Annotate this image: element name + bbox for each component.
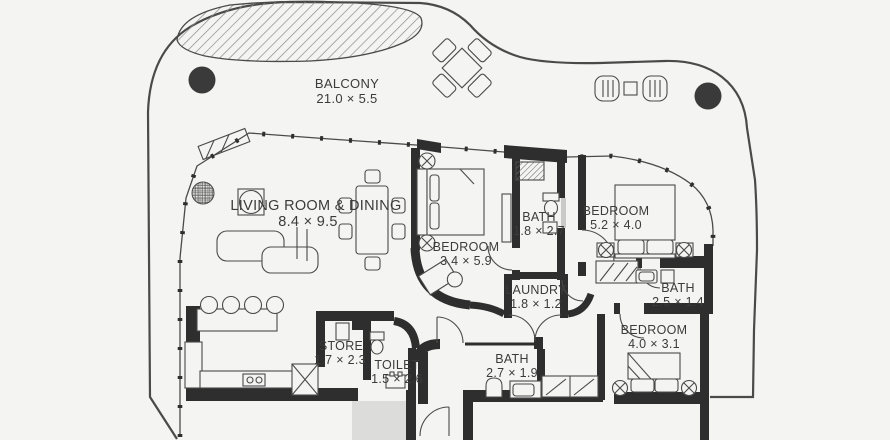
shaft-icon [292, 364, 318, 395]
bar-stool-icon [201, 297, 218, 314]
lamp-icon [599, 243, 614, 258]
dining-table [339, 170, 405, 270]
svg-text:1.5 × 2.6: 1.5 × 2.6 [371, 372, 423, 386]
svg-text:5.2 × 4.0: 5.2 × 4.0 [590, 218, 642, 232]
bedroom-2-furniture [596, 185, 693, 283]
svg-text:BEDROOM: BEDROOM [433, 240, 500, 254]
svg-text:BALCONY: BALCONY [315, 76, 379, 91]
room-label-bedroom-2: BEDROOM 5.2 × 4.0 [583, 204, 650, 232]
lamp-icon [677, 243, 692, 258]
column-icon [189, 67, 216, 94]
water-heater-icon [336, 323, 349, 340]
room-label-bedroom-1: BEDROOM 3.4 × 5.9 [433, 240, 500, 268]
bedroom-1-furniture [417, 153, 484, 301]
room-label-store: STORE 1.7 × 2.3 [314, 339, 366, 367]
bar-stool-icon [245, 297, 262, 314]
floor-plan: BALCONY 21.0 × 5.5 LIVING ROOM & DINING … [0, 0, 890, 440]
svg-text:LAUNDRY: LAUNDRY [505, 283, 567, 297]
lamp-icon [682, 381, 697, 396]
wardrobe [596, 261, 638, 283]
svg-text:BATH: BATH [495, 352, 529, 366]
balcony-bench [198, 129, 250, 160]
planter-hatched-area [177, 1, 422, 61]
svg-text:3.4 × 5.9: 3.4 × 5.9 [440, 254, 492, 268]
svg-text:2.5 × 1.4: 2.5 × 1.4 [652, 295, 704, 309]
balcony-dining-set [417, 23, 508, 114]
kitchen-furniture [185, 297, 318, 396]
svg-text:1.8 × 2.7: 1.8 × 2.7 [513, 224, 565, 238]
bar-stool-icon [267, 297, 284, 314]
sun-loungers [595, 76, 667, 101]
room-label-bath-3: BATH 2.7 × 1.9 [486, 352, 538, 380]
cooktop-icon [243, 374, 265, 386]
wc-icon [371, 340, 383, 354]
closet [542, 376, 598, 397]
store-fixtures [336, 323, 349, 340]
svg-text:TOILET: TOILET [374, 358, 419, 372]
sink-icon [486, 378, 502, 397]
room-label-balcony: BALCONY 21.0 × 5.5 [315, 76, 379, 106]
bar-stool-icon [223, 297, 240, 314]
bedroom-3-furniture [542, 353, 697, 397]
svg-text:8.4 × 9.5: 8.4 × 9.5 [278, 214, 338, 230]
room-label-laundry: LAUNDRY 1.8 × 1.2 [505, 283, 567, 311]
bed [417, 169, 427, 235]
svg-text:1.7 × 2.3: 1.7 × 2.3 [314, 353, 366, 367]
svg-text:STORE: STORE [319, 339, 363, 353]
svg-text:2.7 × 1.9: 2.7 × 1.9 [486, 366, 538, 380]
room-label-bath-1: BATH 1.8 × 2.7 [513, 210, 565, 238]
lamp-icon [613, 381, 628, 396]
wc-icon [543, 193, 559, 201]
service-shaft-area [352, 401, 406, 440]
wc-icon [370, 332, 384, 340]
floor-plan-drawing: BALCONY 21.0 × 5.5 LIVING ROOM & DINING … [0, 0, 890, 440]
svg-text:1.8 × 1.2: 1.8 × 1.2 [510, 297, 562, 311]
column-icon [695, 83, 722, 110]
svg-text:BEDROOM: BEDROOM [583, 204, 650, 218]
svg-text:BEDROOM: BEDROOM [621, 323, 688, 337]
svg-text:LIVING ROOM & DINING: LIVING ROOM & DINING [230, 198, 401, 214]
bath-3-fixtures [486, 378, 541, 398]
sofa [217, 231, 318, 273]
svg-text:4.0 × 3.1: 4.0 × 3.1 [628, 337, 680, 351]
svg-text:21.0 × 5.5: 21.0 × 5.5 [316, 91, 377, 106]
room-label-toilet: TOILET 1.5 × 2.6 [371, 358, 423, 386]
room-label-bath-2: BATH 2.5 × 1.4 [652, 281, 704, 309]
kitchen-counter [185, 342, 202, 388]
svg-text:BATH: BATH [522, 210, 556, 224]
room-label-bedroom-3: BEDROOM 4.0 × 3.1 [621, 323, 688, 351]
shower [516, 162, 544, 180]
cabinet [502, 194, 511, 242]
svg-text:BATH: BATH [661, 281, 695, 295]
column-hatched-icon [192, 182, 214, 204]
lamp-icon [419, 153, 435, 169]
